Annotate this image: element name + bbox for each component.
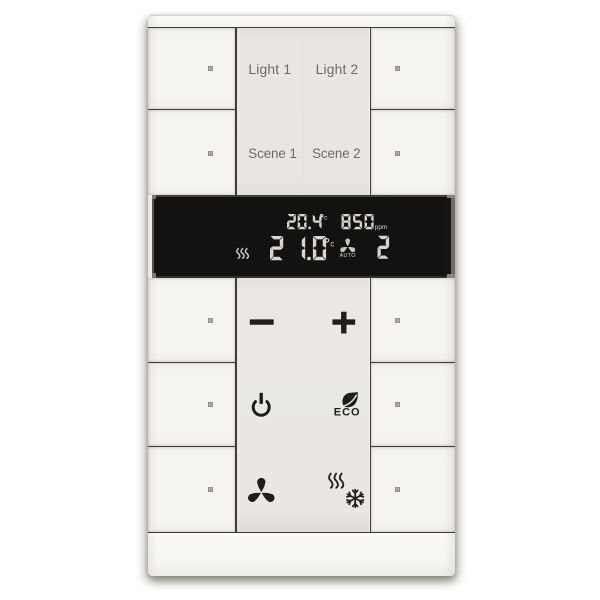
svg-text:ECO: ECO — [334, 406, 361, 418]
